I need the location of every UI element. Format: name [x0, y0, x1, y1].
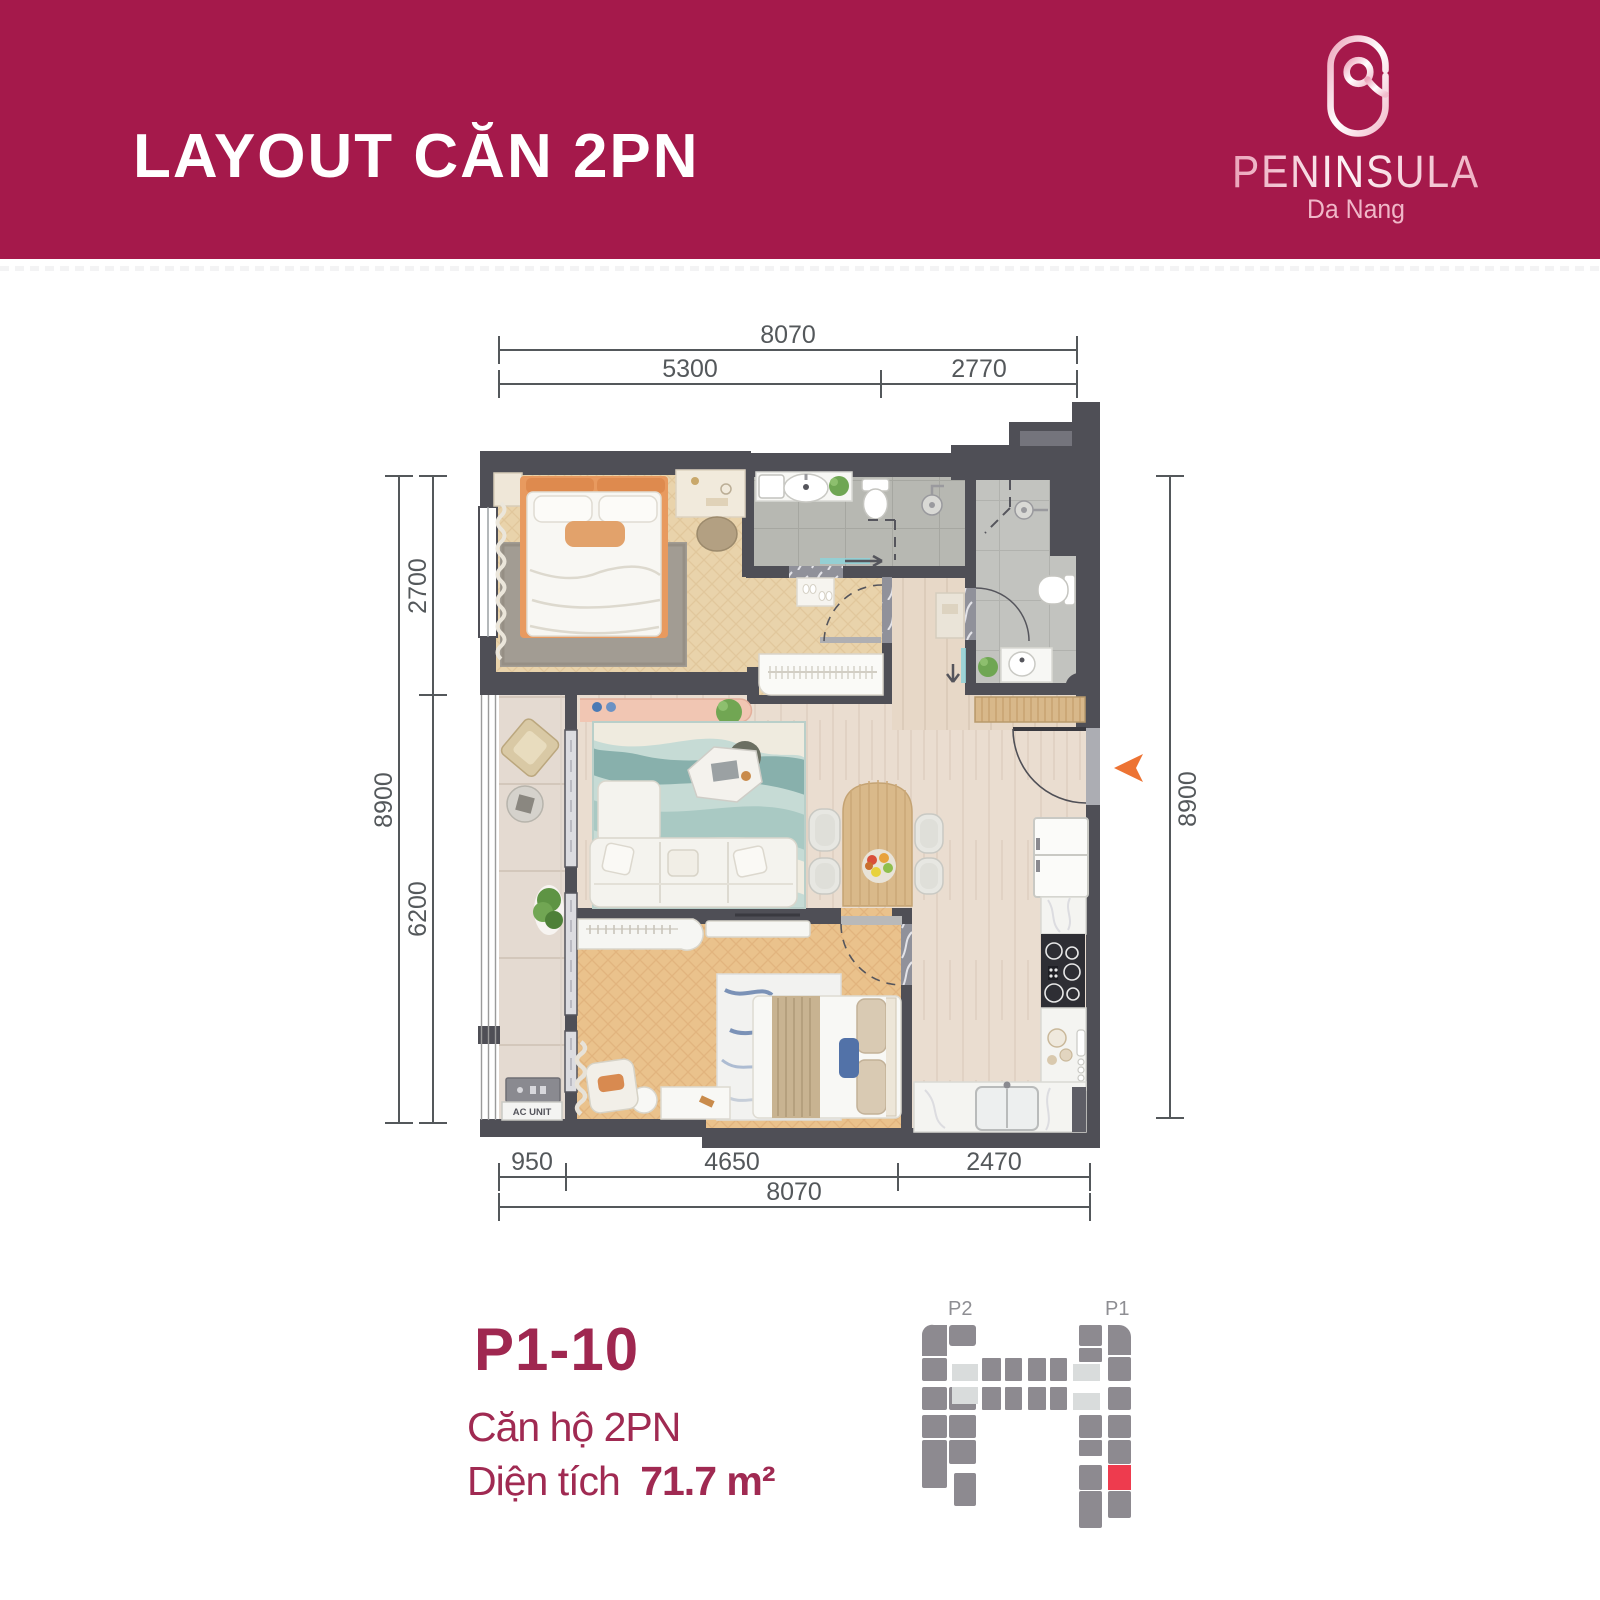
svg-text:8900: 8900: [1174, 771, 1202, 827]
svg-text:2770: 2770: [951, 355, 1007, 383]
svg-text:2470: 2470: [966, 1148, 1022, 1176]
svg-text:950: 950: [511, 1148, 553, 1176]
svg-text:8070: 8070: [760, 321, 816, 349]
svg-text:8900: 8900: [370, 772, 398, 828]
svg-text:6200: 6200: [404, 881, 432, 937]
svg-text:AC UNIT: AC UNIT: [513, 1107, 552, 1118]
svg-text:4650: 4650: [704, 1148, 760, 1176]
svg-text:5300: 5300: [662, 355, 718, 383]
svg-text:8070: 8070: [766, 1178, 822, 1206]
svg-text:2700: 2700: [404, 558, 432, 614]
